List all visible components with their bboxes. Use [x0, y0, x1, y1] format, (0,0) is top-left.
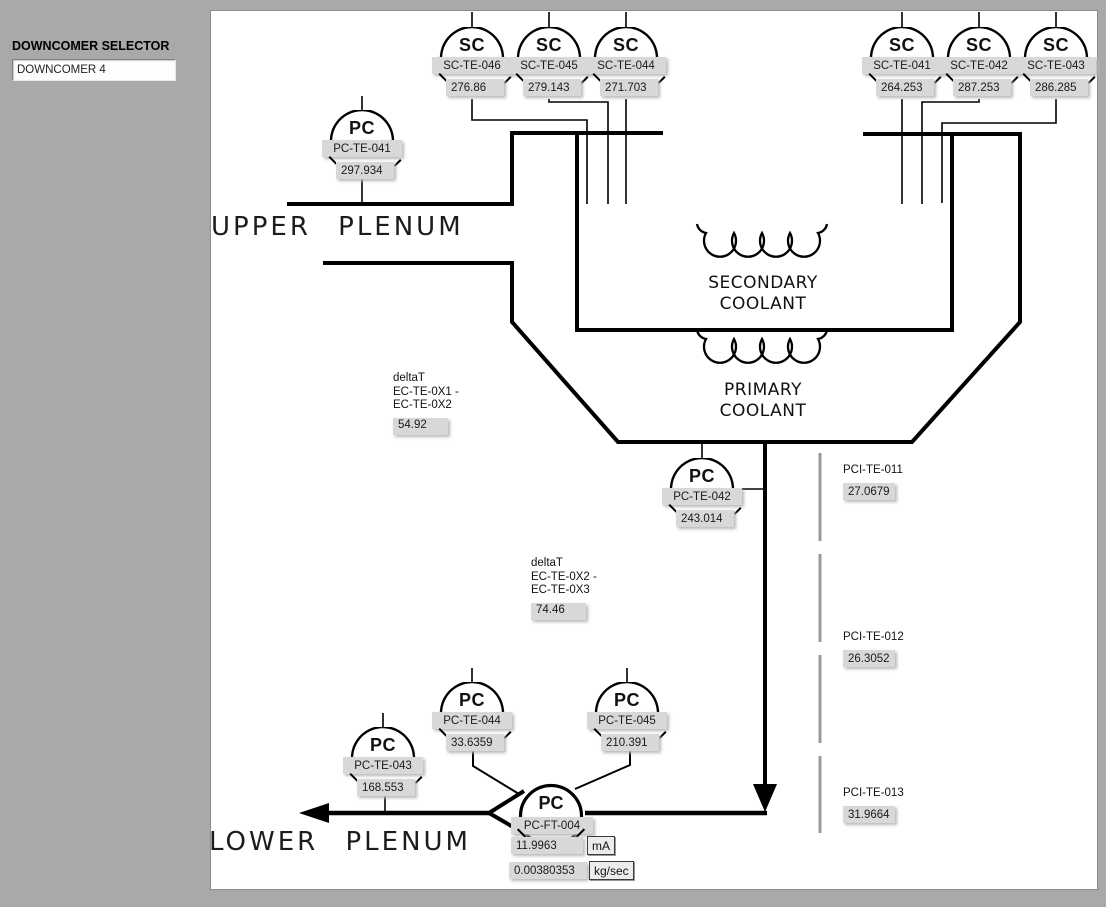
sensor-value: 287.253 [953, 79, 1011, 96]
hmi-screen: DOWNCOMER SELECTOR UPPER PLENUM LOWER PL… [0, 0, 1106, 907]
sensor-PCI-TE-013: PCI-TE-013 31.9664 [843, 787, 904, 823]
sensor-value: 27.0679 [843, 483, 895, 500]
sensor-value: 26.3052 [843, 650, 895, 667]
leader-tick-icon [504, 731, 511, 738]
sensor-value: 279.143 [523, 79, 581, 96]
upper-plenum-label: UPPER PLENUM [211, 212, 464, 242]
sensor-tag: PC-TE-041 [322, 140, 402, 157]
sensor-tag: SC-TE-043 [1016, 57, 1096, 74]
leader-tick-icon [415, 776, 422, 783]
sensor-value: 297.934 [336, 162, 394, 179]
sensor-tag: PC-TE-042 [662, 488, 742, 505]
sensor-tag: PC-TE-044 [432, 712, 512, 729]
downcomer-selector-label: DOWNCOMER SELECTOR [12, 39, 169, 53]
sensor-value: 31.9664 [843, 806, 895, 823]
sensor-SC-TE-043: SC SC-TE-043 286.285 [1006, 27, 1106, 103]
sensor-tag: PC-TE-043 [343, 757, 423, 774]
sensor-value: 276.86 [446, 79, 504, 96]
flowmeter-PC-FT-004: PC PC-FT-004 11.9963 mA 0.00380353 kg/se… [501, 781, 646, 886]
downcomer-selector-input[interactable] [12, 59, 176, 81]
sensor-tag: PCI-TE-011 [843, 464, 903, 476]
secondary-coolant-label: SECONDARY COOLANT [663, 273, 863, 315]
secondary-coil-icon [697, 224, 827, 257]
sensor-tag: PC-TE-045 [587, 712, 667, 729]
sensor-tag: PCI-TE-012 [843, 631, 904, 643]
sensor-tag: SC-TE-044 [586, 57, 666, 74]
sensor-PC-TE-042: PC PC-TE-042 243.014 [652, 458, 752, 534]
sensor-PC-TE-041: PC PC-TE-041 297.934 [312, 110, 412, 186]
lower-plenum-label: LOWER PLENUM [209, 827, 471, 857]
sensor-value: 271.703 [600, 79, 658, 96]
primary-coolant-label: PRIMARY COOLANT [663, 380, 863, 422]
leader-tick-icon [734, 507, 741, 514]
flowmeter-current-value: 11.9963 [511, 837, 583, 854]
sensor-PCI-TE-011: PCI-TE-011 27.0679 [843, 464, 903, 500]
deltaT-block-1: deltaT EC-TE-0X1 - EC-TE-0X2 54.92 [393, 372, 459, 435]
flow-unit-box: kg/sec [589, 861, 634, 880]
sensor-value: 264.253 [876, 79, 934, 96]
current-unit-box: mA [587, 836, 615, 855]
sensor-PC-TE-045: PC PC-TE-045 210.391 [577, 682, 677, 758]
primary-coil-icon [697, 330, 827, 363]
deltaT-value: 54.92 [393, 418, 448, 435]
sensor-value: 168.553 [357, 779, 415, 796]
sensor-PC-TE-043: PC PC-TE-043 168.553 [333, 727, 433, 803]
piping-diagram [0, 0, 1106, 907]
leader-tick-icon [1088, 76, 1095, 83]
sensor-value: 286.285 [1030, 79, 1088, 96]
leader-tick-icon [658, 76, 665, 83]
deltaT-block-2: deltaT EC-TE-0X2 - EC-TE-0X3 74.46 [531, 557, 597, 620]
sensor-value: 33.6359 [446, 734, 504, 751]
deltaT-value: 74.46 [531, 603, 586, 620]
sensor-SC-TE-044: SC SC-TE-044 271.703 [576, 27, 676, 103]
flow-arrow-down-icon [753, 784, 777, 812]
leader-tick-icon [394, 159, 401, 166]
sensor-tag: PCI-TE-013 [843, 787, 904, 799]
leader-tick-icon [659, 731, 666, 738]
flowmeter-flow-value: 0.00380353 [509, 862, 587, 879]
flow-arrow-left-icon [299, 803, 329, 823]
sensor-value: 210.391 [601, 734, 659, 751]
sensor-PCI-TE-012: PCI-TE-012 26.3052 [843, 631, 904, 667]
sensor-value: 243.014 [676, 510, 734, 527]
sensor-PC-TE-044: PC PC-TE-044 33.6359 [422, 682, 522, 758]
